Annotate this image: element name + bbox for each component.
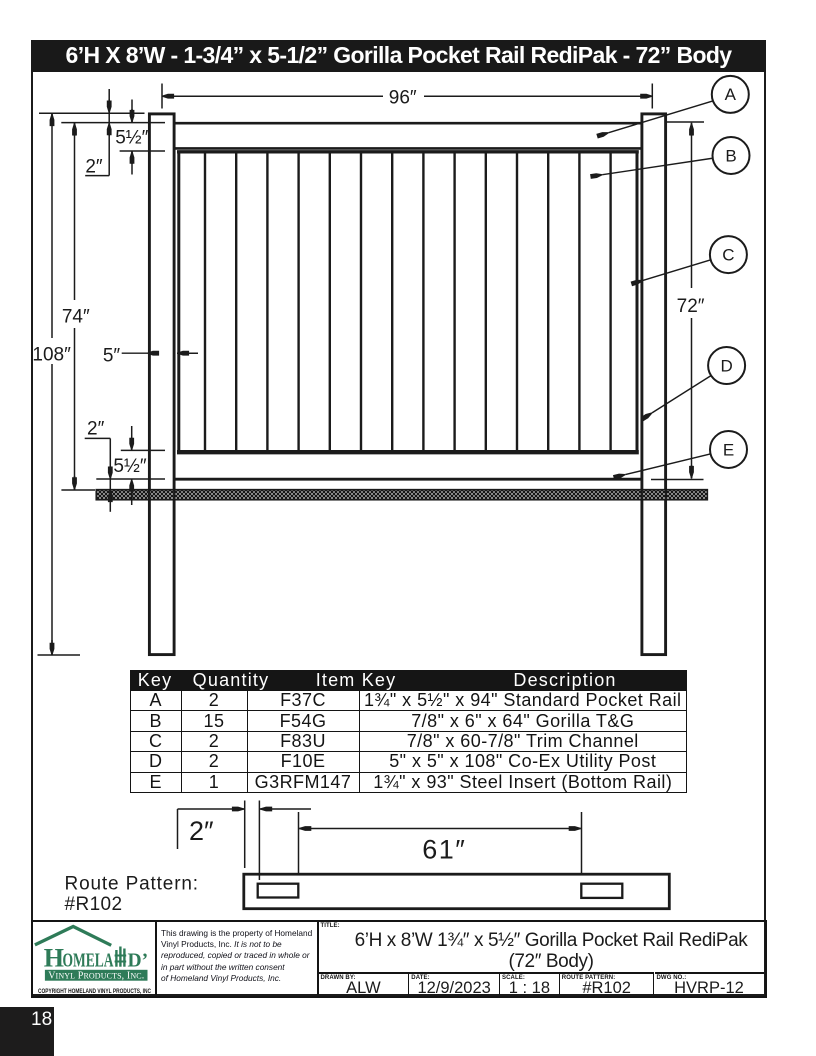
svg-text:5½″: 5½″	[115, 128, 148, 149]
svg-text:D’: D’	[128, 950, 149, 971]
svg-text:96″: 96″	[389, 87, 417, 108]
svg-text:2″: 2″	[85, 156, 103, 177]
svg-text:61″: 61″	[422, 835, 466, 865]
svg-text:5″: 5″	[103, 345, 121, 366]
svg-text:OMELA: OMELA	[63, 950, 114, 971]
svg-text:#R102: #R102	[65, 894, 123, 915]
svg-text:74″: 74″	[62, 306, 90, 327]
svg-text:C: C	[722, 246, 734, 265]
svg-text:108″: 108″	[32, 344, 71, 365]
svg-text:VINYL PRODUCTS, INC.: VINYL PRODUCTS, INC.	[48, 970, 144, 981]
svg-text:72″: 72″	[677, 296, 705, 317]
svg-text:5½″: 5½″	[113, 456, 146, 477]
svg-text:Route Pattern:: Route Pattern:	[65, 874, 199, 895]
svg-text:H: H	[44, 943, 64, 972]
svg-text:COPYRIGHT HOMELAND VINYL PRODU: COPYRIGHT HOMELAND VINYL PRODUCTS, INC	[38, 988, 152, 994]
svg-text:E: E	[723, 441, 734, 460]
svg-text:A: A	[725, 85, 737, 104]
svg-text:2″: 2″	[189, 816, 214, 846]
svg-text:B: B	[725, 147, 736, 166]
svg-text:D: D	[720, 357, 732, 376]
svg-text:2″: 2″	[87, 419, 105, 440]
